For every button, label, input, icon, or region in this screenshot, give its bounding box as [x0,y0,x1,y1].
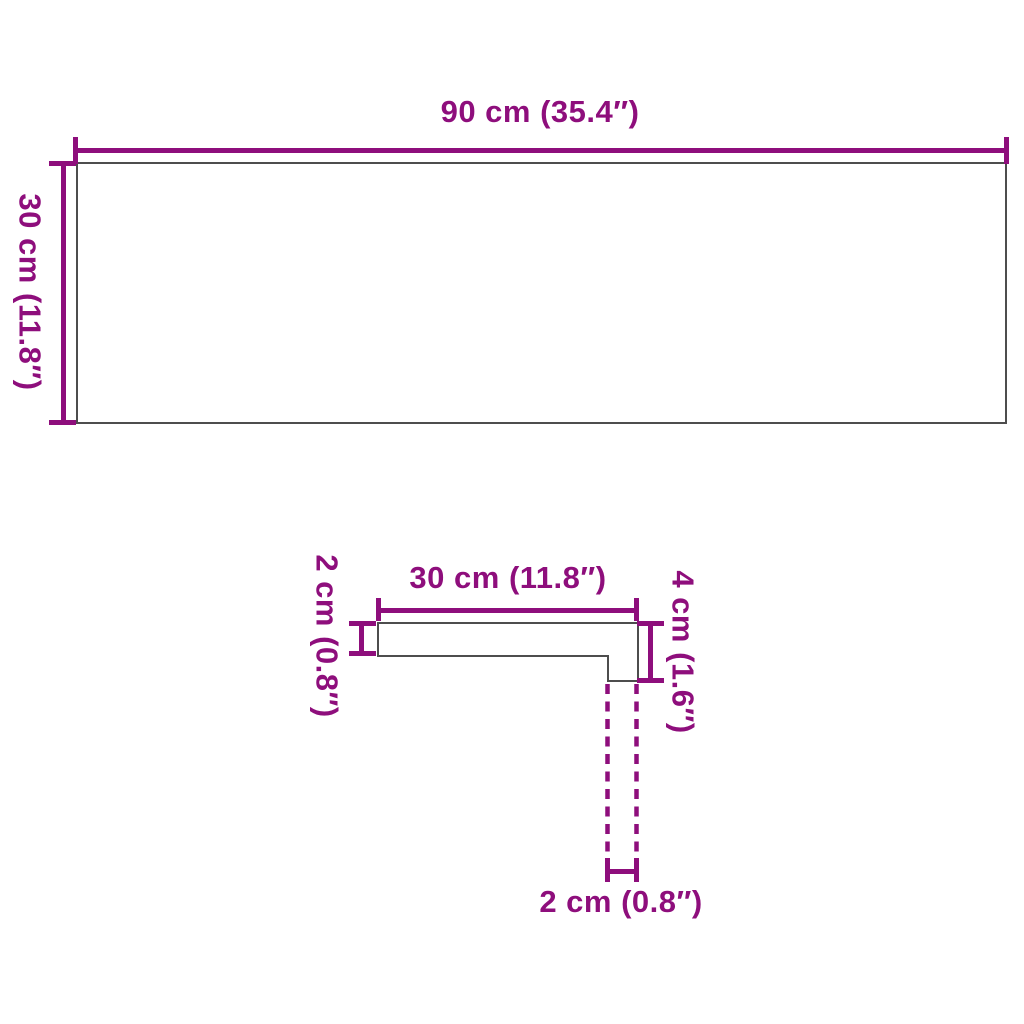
thickness-dimension-tick-bottom [349,651,376,656]
depth-dimension-tick-right [634,598,639,621]
thickness-dimension-tick-top [349,621,376,626]
nose-height-dimension-label: 4 cm (1.6″) [668,570,699,733]
diagram-shapes [0,0,1024,1024]
width-dimension-line [75,148,1008,153]
profile-cross-section-outline [378,623,638,681]
thickness-dimension-label: 2 cm (0.8″) [312,554,343,717]
height-dimension-label: 30 cm (11.8″) [15,193,46,390]
width-dimension-tick-right [1004,137,1009,164]
height-dimension-tick-top [49,161,76,166]
height-dimension-line [61,163,66,424]
nose-height-dimension-tick-top [637,621,664,626]
panel-top-view-outline [77,163,1006,423]
nose-width-dimension-label: 2 cm (0.8″) [539,886,702,917]
depth-dimension-tick-left [376,598,381,621]
depth-dimension-line [378,608,638,613]
nose-width-dimension-line [605,869,639,874]
width-dimension-tick-left [73,137,78,164]
height-dimension-tick-bottom [49,420,76,425]
width-dimension-label: 90 cm (35.4″) [441,96,640,127]
nose-height-dimension-line [648,623,653,683]
dimension-diagram: 90 cm (35.4″) 30 cm (11.8″) 30 cm (11.8″… [0,0,1024,1024]
nose-height-dimension-tick-bottom [637,678,664,683]
depth-dimension-label: 30 cm (11.8″) [409,562,606,593]
